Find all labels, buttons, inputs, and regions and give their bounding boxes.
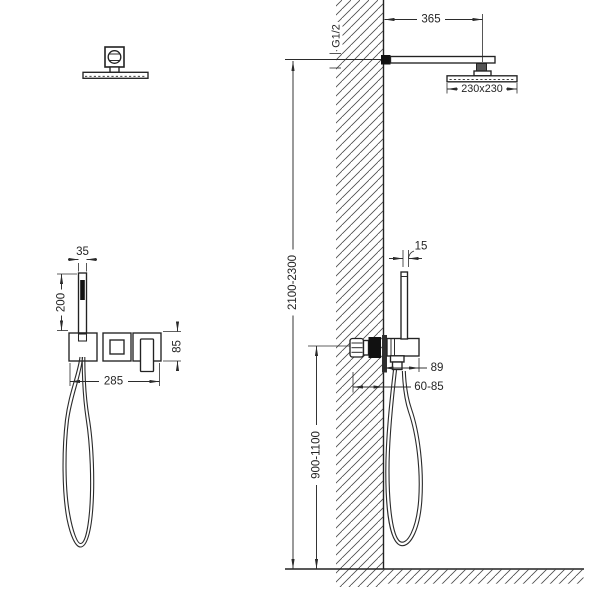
head-swivel-joint (477, 64, 487, 72)
hose-side-outer (386, 370, 423, 546)
dim285-label: 285 (104, 376, 123, 388)
hand-shower-side (401, 272, 408, 339)
dim6085-label: 60-85 (414, 381, 443, 393)
handshower-face-dark (80, 280, 85, 300)
dim-handshower-length: 200 (55, 274, 77, 331)
valve-escutcheon-side (382, 335, 387, 373)
dim85-label: 85 (172, 340, 184, 353)
valve-mount-block (369, 337, 382, 358)
wall-section (336, 0, 384, 587)
mixer-lever (141, 339, 154, 372)
head-ball-joint (108, 51, 121, 64)
hose-nut-side-1 (391, 356, 405, 362)
dim35-label: 35 (76, 246, 89, 258)
floor-hatch (384, 570, 584, 584)
dim-head-arm-offset: 365 (385, 14, 483, 63)
shower-installation-drawing: G1/2 365 230x230 (0, 0, 600, 600)
dim200-label: 200 (56, 293, 68, 312)
dim-valve-height: 900-1100 (310, 346, 324, 569)
hose-side-inner (389, 370, 419, 542)
arm-wall-connector (381, 55, 391, 65)
drawing-canvas: G1/2 365 230x230 (0, 0, 600, 600)
dim365-label: 365 (421, 14, 440, 26)
dim230-label: 230x230 (461, 83, 502, 95)
hose-side (386, 370, 423, 546)
wall-hatch (336, 0, 384, 587)
handshower-wand-side (401, 272, 408, 339)
dim-head-size: 230x230 (447, 83, 517, 95)
valve-washer (364, 341, 369, 356)
dim2100-label: 2100-2300 (287, 255, 299, 310)
shower-arm-side (391, 57, 496, 64)
hose-nut-overlap (79, 334, 87, 341)
valve-trim-body (387, 339, 419, 357)
head-plate-side (447, 76, 517, 82)
dim900-label: 900-1100 (311, 431, 323, 479)
rain-head-side (447, 64, 517, 82)
thread-label: G1/2 (331, 24, 343, 47)
head-neck-front (110, 67, 119, 72)
dim-trim-height: 85 (163, 322, 184, 371)
diverter-knob (110, 340, 124, 354)
head-plate-front (83, 72, 148, 78)
dim-handshower-depth: 15 (389, 241, 427, 268)
rain-head-front (83, 47, 148, 78)
hose-front (63, 357, 94, 547)
dim-handshower-width: 35 (68, 246, 97, 272)
floor-section (285, 569, 584, 584)
dim15-label: 15 (415, 241, 428, 253)
dim-overall-height: 2100-2300 (286, 61, 300, 569)
dim89-label: 89 (431, 362, 444, 374)
dim15-leader (409, 251, 415, 258)
head-mount-block (474, 71, 491, 76)
